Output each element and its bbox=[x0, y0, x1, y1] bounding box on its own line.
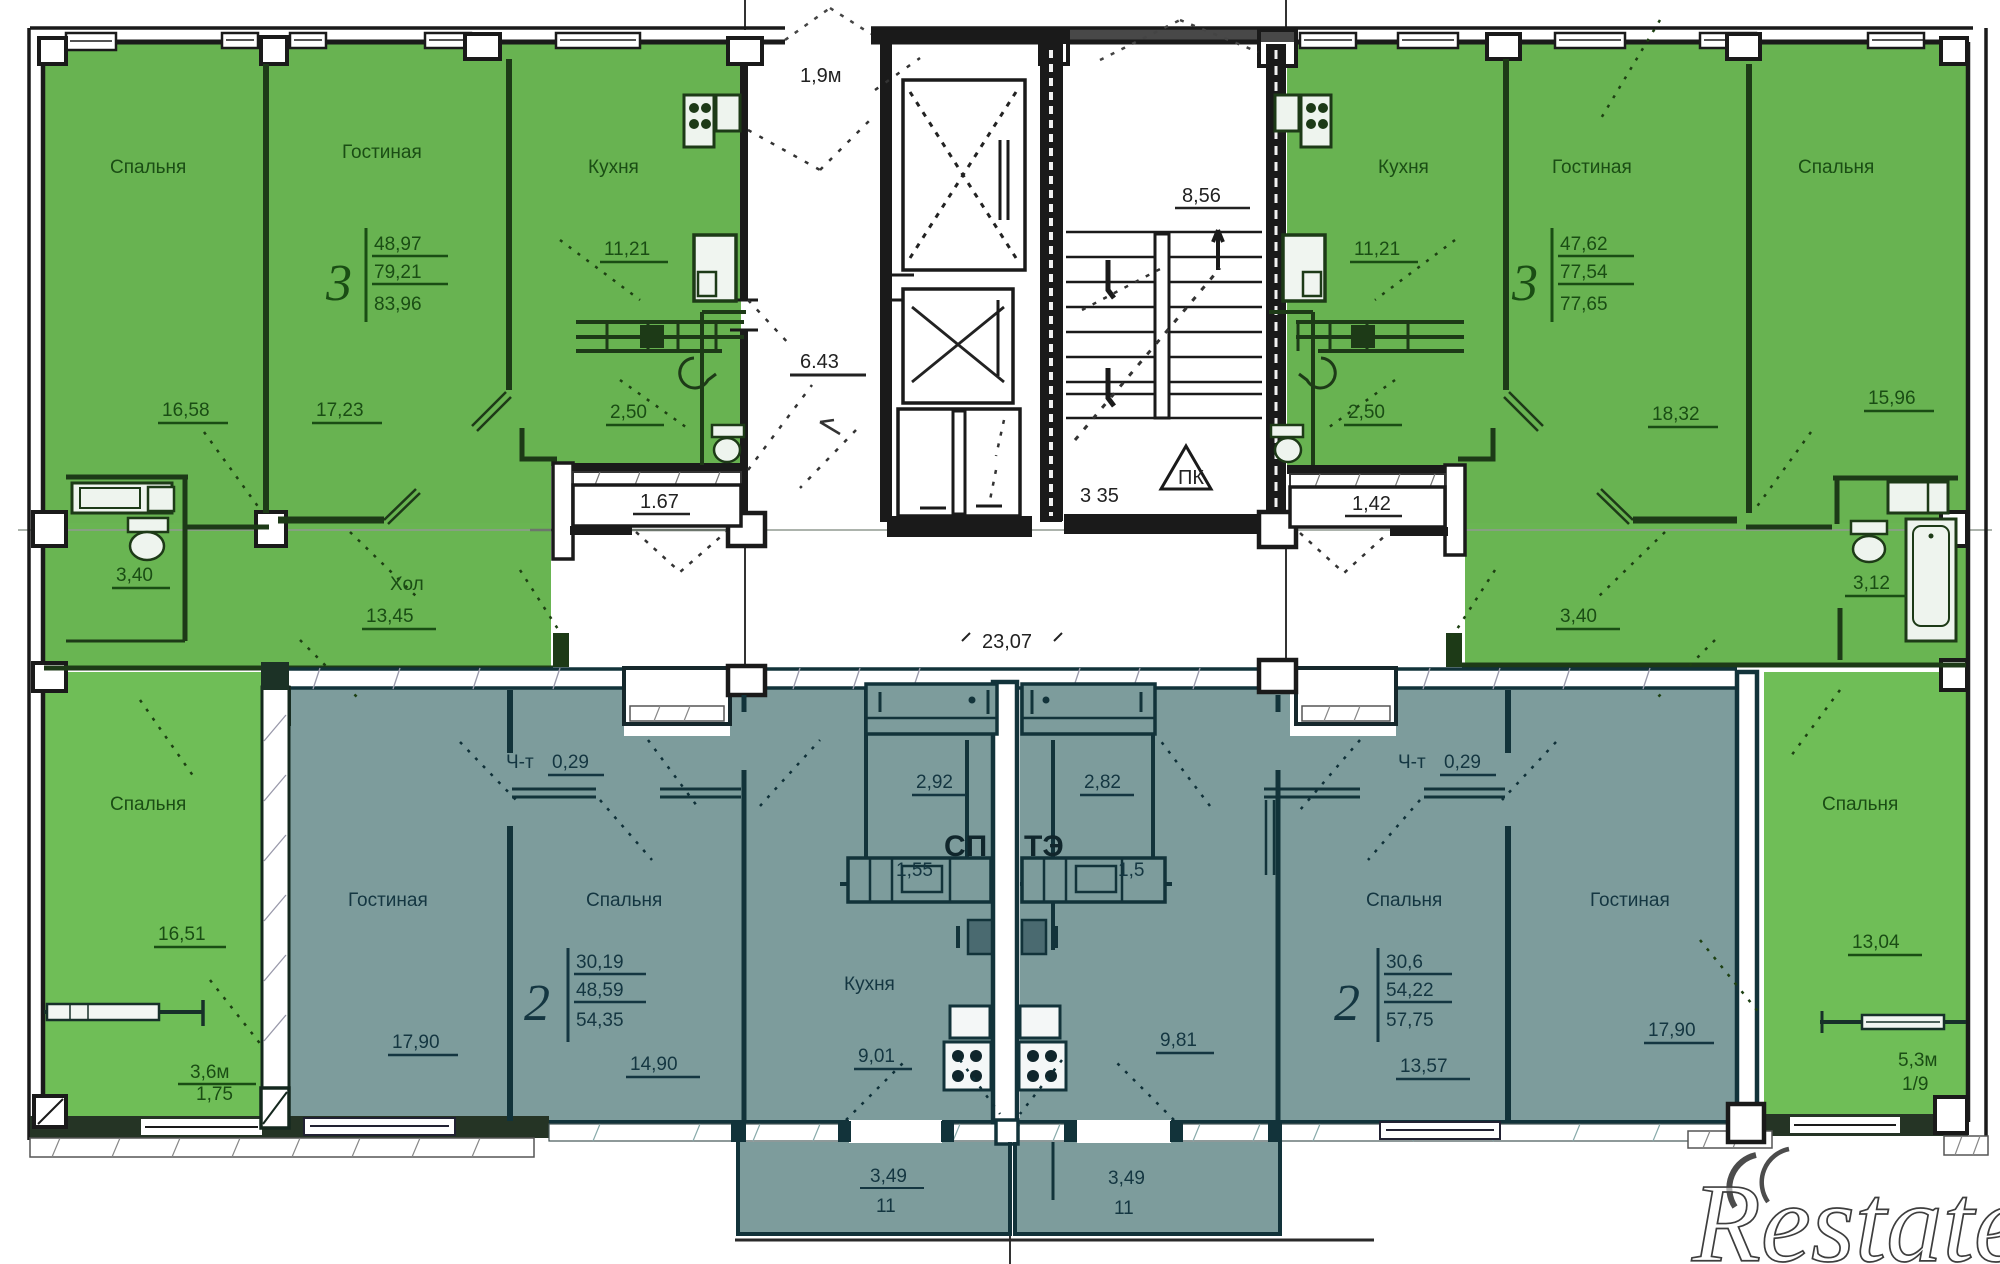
svg-text:11,21: 11,21 bbox=[1354, 239, 1400, 260]
svg-text:17,90: 17,90 bbox=[392, 1032, 440, 1053]
svg-text:6.43: 6.43 bbox=[800, 351, 839, 373]
svg-text:77,65: 77,65 bbox=[1560, 294, 1608, 315]
svg-text:14,90: 14,90 bbox=[630, 1054, 678, 1075]
svg-text:30,6: 30,6 bbox=[1386, 952, 1423, 973]
svg-text:Спальня: Спальня bbox=[110, 794, 186, 815]
svg-text:Спальня: Спальня bbox=[1366, 890, 1442, 911]
svg-text:17,90: 17,90 bbox=[1648, 1020, 1696, 1041]
svg-text:2,92: 2,92 bbox=[916, 772, 953, 793]
svg-text:Спальня: Спальня bbox=[110, 157, 186, 178]
svg-text:3: 3 bbox=[325, 255, 352, 312]
svg-text:17,23: 17,23 bbox=[316, 400, 364, 421]
svg-text:13,57: 13,57 bbox=[1400, 1056, 1448, 1077]
svg-text:54,22: 54,22 bbox=[1386, 980, 1434, 1001]
svg-text:0,29: 0,29 bbox=[552, 752, 589, 773]
svg-text:3 35: 3 35 bbox=[1080, 485, 1119, 507]
svg-text:3,6м: 3,6м bbox=[190, 1062, 229, 1083]
svg-text:30,19: 30,19 bbox=[576, 952, 624, 973]
svg-text:11: 11 bbox=[876, 1196, 896, 1217]
svg-text:13,04: 13,04 bbox=[1852, 932, 1900, 953]
svg-text:3: 3 bbox=[1511, 255, 1538, 312]
svg-text:48,59: 48,59 bbox=[576, 980, 624, 1001]
svg-text:16,58: 16,58 bbox=[162, 400, 210, 421]
svg-text:2: 2 bbox=[524, 975, 550, 1032]
svg-text:5,3м: 5,3м bbox=[1898, 1050, 1937, 1071]
svg-text:15,96: 15,96 bbox=[1868, 388, 1916, 409]
svg-text:Спальня: Спальня bbox=[1822, 794, 1898, 815]
svg-text:Ч-т: Ч-т bbox=[506, 752, 534, 773]
svg-text:Кухня: Кухня bbox=[588, 157, 639, 178]
svg-text:ПК: ПК bbox=[1178, 467, 1204, 489]
svg-text:Спальня: Спальня bbox=[1798, 157, 1874, 178]
svg-text:48,97: 48,97 bbox=[374, 234, 422, 255]
svg-text:47,62: 47,62 bbox=[1560, 234, 1608, 255]
svg-text:23,07: 23,07 bbox=[982, 631, 1032, 653]
svg-text:Гостиная: Гостиная bbox=[342, 142, 422, 163]
svg-text:3,12: 3,12 bbox=[1853, 573, 1890, 594]
svg-text:18,32: 18,32 bbox=[1652, 404, 1700, 425]
svg-text:83,96: 83,96 bbox=[374, 294, 422, 315]
svg-text:1,9м: 1,9м bbox=[800, 65, 842, 87]
svg-text:2,82: 2,82 bbox=[1084, 772, 1121, 793]
svg-text:Хол: Хол bbox=[390, 574, 424, 595]
svg-text:Кухня: Кухня bbox=[844, 974, 895, 995]
svg-text:Restate: Restate bbox=[1691, 1162, 2000, 1264]
svg-text:1.67: 1.67 bbox=[640, 491, 679, 513]
svg-text:СП: СП bbox=[944, 830, 987, 863]
svg-text:8,56: 8,56 bbox=[1182, 185, 1221, 207]
svg-text:3,40: 3,40 bbox=[116, 565, 153, 586]
svg-text:9,01: 9,01 bbox=[858, 1046, 895, 1067]
svg-text:1,55: 1,55 bbox=[896, 860, 933, 881]
svg-text:Ч-т: Ч-т bbox=[1398, 752, 1426, 773]
svg-text:Кухня: Кухня bbox=[1378, 157, 1429, 178]
svg-text:9,81: 9,81 bbox=[1160, 1030, 1197, 1051]
svg-text:11: 11 bbox=[1114, 1198, 1134, 1219]
svg-text:3,40: 3,40 bbox=[1560, 606, 1597, 627]
svg-text:57,75: 57,75 bbox=[1386, 1010, 1434, 1031]
svg-text:Гостиная: Гостиная bbox=[1590, 890, 1670, 911]
svg-text:54,35: 54,35 bbox=[576, 1010, 624, 1031]
svg-text:13,45: 13,45 bbox=[366, 606, 414, 627]
svg-text:3,49: 3,49 bbox=[1108, 1168, 1145, 1189]
svg-text:2: 2 bbox=[1334, 975, 1360, 1032]
svg-text:16,51: 16,51 bbox=[158, 924, 206, 945]
svg-text:2,50: 2,50 bbox=[610, 402, 647, 423]
svg-text:1/9: 1/9 bbox=[1902, 1074, 1928, 1095]
svg-text:ТЭ: ТЭ bbox=[1024, 830, 1064, 863]
svg-text:Спальня: Спальня bbox=[586, 890, 662, 911]
svg-text:79,21: 79,21 bbox=[374, 262, 422, 283]
svg-text:1,5: 1,5 bbox=[1118, 860, 1144, 881]
svg-text:2,50: 2,50 bbox=[1348, 402, 1385, 423]
svg-text:Гостиная: Гостиная bbox=[1552, 157, 1632, 178]
svg-text:Гостиная: Гостиная bbox=[348, 890, 428, 911]
svg-text:1,75: 1,75 bbox=[196, 1084, 233, 1105]
svg-text:1,42: 1,42 bbox=[1352, 493, 1391, 515]
svg-text:11,21: 11,21 bbox=[604, 239, 650, 260]
svg-text:77,54: 77,54 bbox=[1560, 262, 1608, 283]
svg-text:0,29: 0,29 bbox=[1444, 752, 1481, 773]
svg-text:3,49: 3,49 bbox=[870, 1166, 907, 1187]
